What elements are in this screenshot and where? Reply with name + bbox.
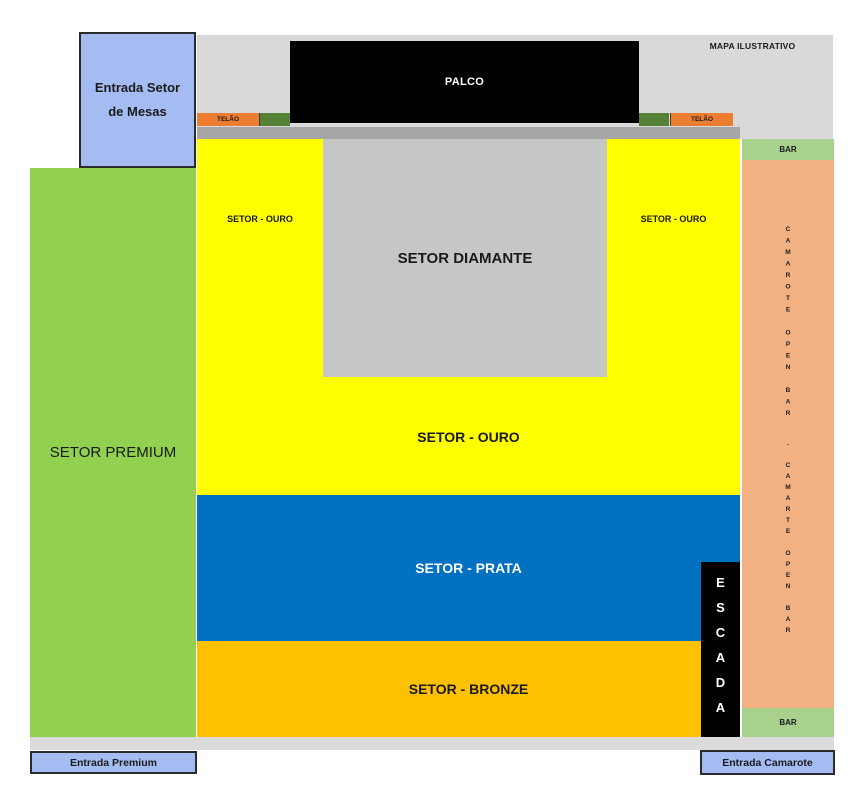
screen-telao-right-label: TELÃO (691, 116, 713, 123)
stairs-escada-label: ESCADA (713, 575, 728, 725)
stage-front-strip (197, 127, 740, 139)
entrance-premium: Entrada Premium (30, 751, 197, 774)
sector-ouro-right-arm-label: SETOR - OURO (607, 212, 740, 226)
entrance-mesas-label-line1: Entrada Setor (95, 76, 180, 100)
stairs-escada: ESCADA (701, 562, 740, 737)
entrance-mesas-label-line2: de Mesas (108, 100, 167, 124)
screen-telao-left-label: TELÃO (217, 116, 239, 123)
bar-bottom: BAR (742, 708, 834, 737)
bar-top-label: BAR (779, 145, 796, 154)
sector-bronze-label: SETOR - BRONZE (409, 681, 529, 697)
sector-diamante-label: SETOR DIAMANTE (398, 250, 533, 267)
sector-prata-label: SETOR - PRATA (415, 560, 522, 576)
bottom-walkway-strip (30, 737, 834, 750)
map-note-label: MAPA ILUSTRATIVO (680, 40, 825, 52)
sector-premium: SETOR PREMIUM (30, 168, 196, 737)
sector-ouro-main-label: SETOR - OURO (197, 428, 740, 446)
sector-bronze: SETOR - BRONZE (197, 641, 740, 737)
camarote-vertical-label-1: CAMAROTE OPEN BAR (785, 226, 792, 422)
venue-map: MAPA ILUSTRATIVO PALCO TELÃO TELÃO Entra… (0, 0, 867, 812)
camarote-vertical-label-2: . CAMARTE OPEN BAR (785, 440, 792, 638)
entrance-camarote: Entrada Camarote (700, 750, 835, 775)
entrance-setor-de-mesas: Entrada Setor de Mesas (79, 32, 196, 168)
screen-telao-left: TELÃO (197, 113, 260, 126)
stage-label: PALCO (445, 76, 484, 88)
sector-diamante: SETOR DIAMANTE (323, 139, 607, 377)
camarote-open-bar-column: CAMAROTE OPEN BAR . CAMARTE OPEN BAR (742, 160, 834, 708)
sector-prata: SETOR - PRATA (197, 495, 740, 641)
screen-telao-right: TELÃO (670, 113, 733, 126)
entrance-premium-label: Entrada Premium (70, 757, 157, 769)
sector-ouro-left-arm-label: SETOR - OURO (197, 212, 323, 226)
stage-side-strip-right (639, 113, 669, 126)
sector-premium-label: SETOR PREMIUM (50, 444, 176, 461)
bar-bottom-label: BAR (779, 718, 796, 727)
bar-top: BAR (742, 139, 834, 160)
entrance-camarote-label: Entrada Camarote (722, 757, 812, 769)
stage-side-strip-left (260, 113, 290, 126)
stage-palco: PALCO (290, 41, 639, 123)
